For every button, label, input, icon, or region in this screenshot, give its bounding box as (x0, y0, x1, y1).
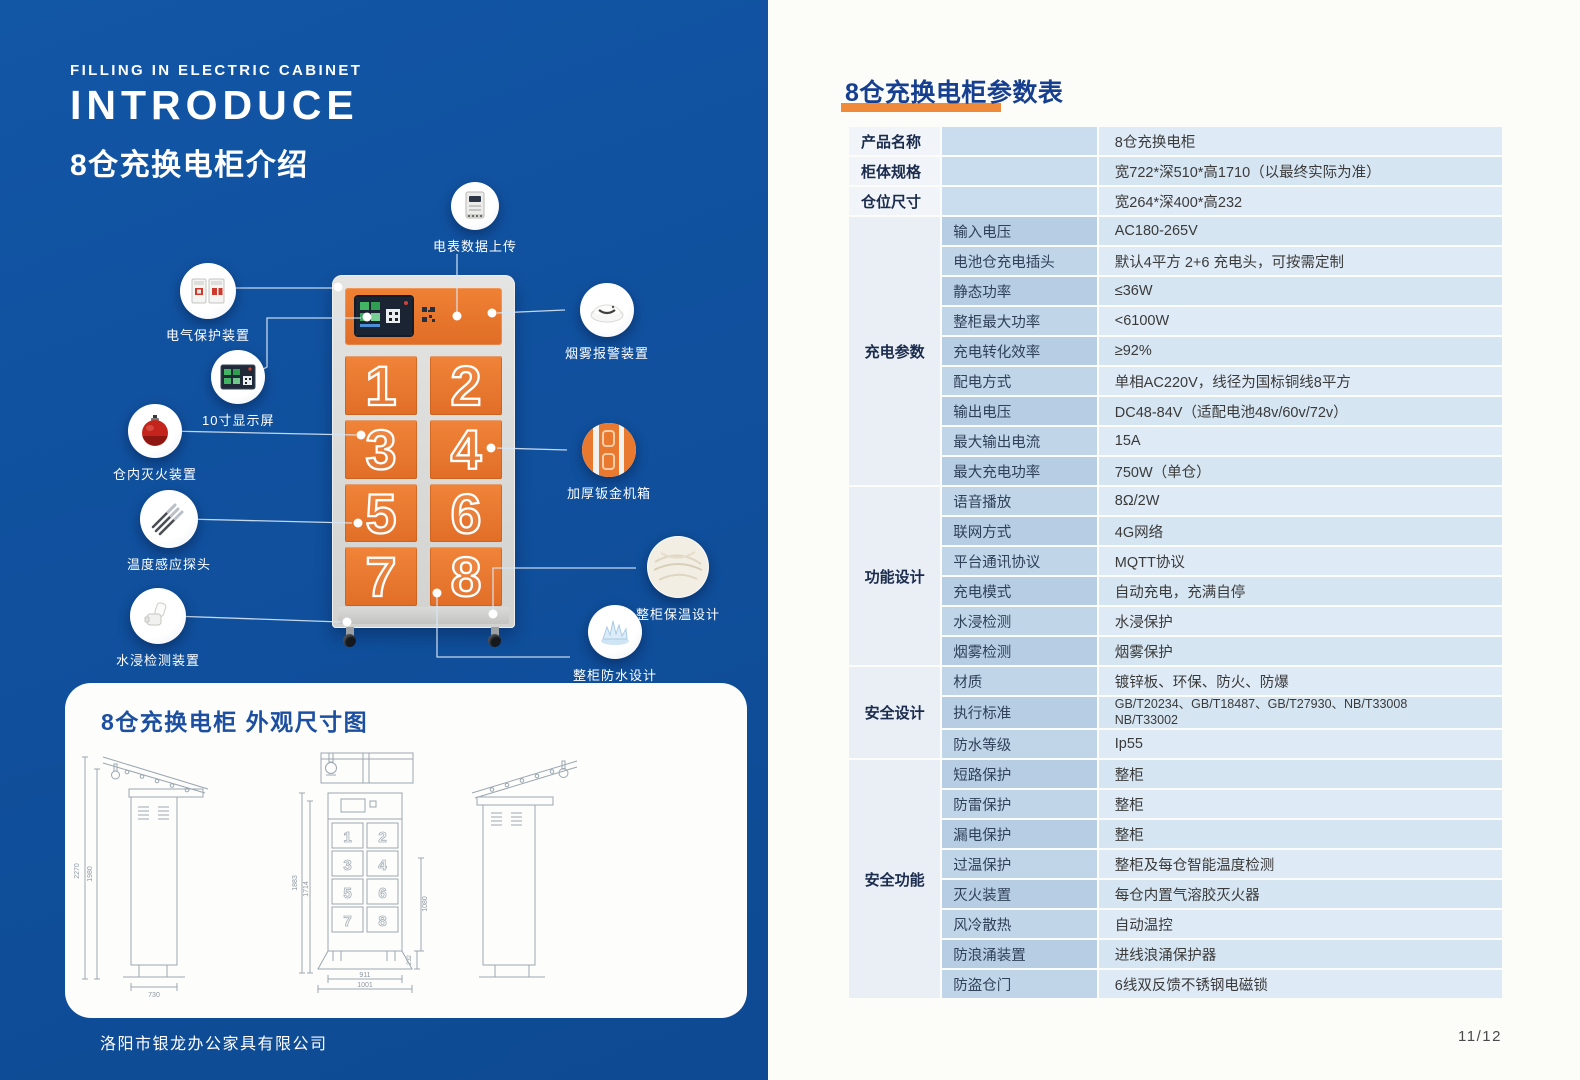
dim-base-width: 1001 (357, 982, 373, 989)
table-row: 最大输出电流15A (849, 427, 1502, 455)
spec-row-value: 烟雾保护 (1099, 637, 1502, 665)
dim-base-height: 232 (407, 954, 413, 965)
spec-row-label: 漏电保护 (942, 820, 1096, 848)
callout-electrical-protection: 电气保护装置 (166, 263, 250, 344)
door-1: 1 (345, 356, 417, 415)
spec-row-label: 静态功率 (942, 277, 1096, 305)
table-row: 联网方式4G网络 (849, 517, 1502, 545)
spec-row-label: 语音播放 (942, 487, 1096, 515)
dim-overall-height: 2270 (74, 863, 81, 879)
temperature-probe-icon (140, 490, 198, 548)
spec-row-label: 短路保护 (942, 760, 1096, 788)
spec-row-value: ≤36W (1099, 277, 1502, 305)
qr-code-icon (422, 307, 435, 322)
table-row: 灭火装置每仓内置气溶胶灭火器 (849, 880, 1502, 908)
dimension-panel-title: 8仓充换电柜 外观尺寸图 (101, 703, 368, 737)
spec-row-value: AC180-265V (1099, 217, 1502, 245)
spec-row-value: 单相AC220V，线径为国标铜线8平方 (1099, 367, 1502, 395)
callout-label: 电气保护装置 (166, 325, 250, 344)
spec-row-label: 风冷散热 (942, 910, 1096, 938)
spec-row-label: 配电方式 (942, 367, 1096, 395)
electric-meter-icon (451, 182, 499, 230)
spec-row-label: 输入电压 (942, 217, 1096, 245)
spec-row-value: 默认4平方 2+6 充电头，可按需定制 (1099, 247, 1502, 275)
spec-table: 产品名称 8仓充换电柜 柜体规格 宽722*深510*高1710（以最终实际为准… (847, 125, 1504, 1000)
door-2: 2 (430, 356, 502, 415)
circuit-breaker-icon (180, 263, 236, 319)
callout-smoke-alarm: 烟雾报警装置 (565, 283, 649, 362)
door-4: 4 (430, 420, 502, 479)
callout-label: 仓内灭火装置 (113, 464, 197, 483)
spec-row-label: 材质 (942, 667, 1096, 695)
display-screen-icon (211, 350, 265, 404)
spec-row-value: MQTT协议 (1099, 547, 1502, 575)
door-number: 6 (450, 484, 481, 543)
spec-row-label: 电池仓充电插头 (942, 247, 1096, 275)
callout-sheet-metal-case: 加厚钣金机箱 (567, 423, 651, 502)
callout-label: 温度感应探头 (127, 554, 211, 573)
door-3: 3 (345, 420, 417, 479)
sheet-metal-icon (582, 423, 636, 477)
caster-wheel-right (487, 627, 503, 649)
dim-body-width: 911 (359, 972, 370, 979)
spec-row-label: 灭火装置 (942, 880, 1096, 908)
table-row: 产品名称 8仓充换电柜 (849, 127, 1502, 155)
table-row: 仓位尺寸 宽264*深400*高232 (849, 187, 1502, 215)
door-5: 5 (345, 484, 417, 543)
spec-row-value: 750W（单仓） (1099, 457, 1502, 485)
smoke-detector-icon (580, 283, 634, 337)
spec-table-title: 8仓充换电柜参数表 (845, 73, 1063, 109)
table-row: 整柜最大功率<6100W (849, 307, 1502, 335)
spec-group-label: 功能设计 (849, 487, 940, 665)
fire-suppression-ball-icon (128, 404, 182, 458)
table-row: 充电模式自动充电，充满自停 (849, 577, 1502, 605)
spec-group-label: 安全功能 (849, 760, 940, 998)
spec-spacer-cell (942, 127, 1096, 155)
door-7: 7 (345, 547, 417, 606)
table-row: 风冷散热自动温控 (849, 910, 1502, 938)
spec-row-value: 6线双反馈不锈钢电磁锁 (1099, 970, 1502, 998)
spec-row-value: 镀锌板、环保、防火、防爆 (1099, 667, 1502, 695)
spec-row-value: 15A (1099, 427, 1502, 455)
callout-water-detection: 水浸检测装置 (116, 588, 200, 669)
spec-group-label: 充电参数 (849, 217, 940, 485)
headline-title-zh: 8仓充换电柜介绍 (70, 140, 362, 184)
spec-row-value: 8Ω/2W (1099, 487, 1502, 515)
cabinet-illustration: 1 2 3 4 5 6 7 8 (332, 275, 515, 628)
callout-label: 电表数据上传 (433, 236, 517, 255)
spec-row-label: 防水等级 (942, 730, 1096, 758)
callout-temperature-probe: 温度感应探头 (127, 490, 211, 573)
table-row: 配电方式单相AC220V，线径为国标铜线8平方 (849, 367, 1502, 395)
table-row: 柜体规格 宽722*深510*高1710（以最终实际为准） (849, 157, 1502, 185)
table-row: 防雷保护整柜 (849, 790, 1502, 818)
dim-door-number: 4 (378, 857, 387, 874)
callout-display-screen: 10寸显示屏 (202, 350, 274, 429)
insulation-ball-icon (647, 536, 709, 598)
dim-depth: 730 (148, 992, 160, 999)
spec-row-value: <6100W (1099, 307, 1502, 335)
callout-label: 整柜防水设计 (573, 665, 657, 684)
callout-label: 水浸检测装置 (116, 650, 200, 669)
caster-wheel-left (342, 627, 358, 649)
spec-row-label: 防雷保护 (942, 790, 1096, 818)
table-row: 安全设计 材质 镀锌板、环保、防火、防爆 (849, 667, 1502, 695)
spec-row-label: 充电模式 (942, 577, 1096, 605)
spec-row-label: 最大输出电流 (942, 427, 1096, 455)
dimension-panel: 8仓充换电柜 外观尺寸图 (65, 683, 747, 1018)
door-number: 8 (450, 547, 481, 606)
table-row: 充电转化效率≥92% (849, 337, 1502, 365)
side-view-right (472, 761, 577, 977)
dim-door-number: 1 (343, 829, 351, 846)
water-sensor-icon (130, 588, 186, 644)
table-row: 烟雾检测烟雾保护 (849, 637, 1502, 665)
spec-row-label: 柜体规格 (849, 157, 940, 185)
page-number: 11/12 (1458, 1028, 1502, 1045)
table-row: 水浸检测水浸保护 (849, 607, 1502, 635)
spec-row-label: 产品名称 (849, 127, 940, 155)
water-splash-icon (588, 605, 642, 659)
spec-row-label: 执行标准 (942, 697, 1096, 728)
door-number: 2 (450, 356, 481, 415)
front-view (299, 753, 424, 993)
dim-door-number: 7 (343, 913, 351, 930)
cabinet-doors: 1 2 3 4 5 6 7 8 (345, 356, 502, 606)
spec-row-value: 水浸保护 (1099, 607, 1502, 635)
table-row: 输出电压DC48-84V（适配电池48v/60v/72v） (849, 397, 1502, 425)
dim-door-number: 5 (343, 885, 351, 902)
dim-door-number: 2 (378, 829, 386, 846)
spec-row-value: 自动充电，充满自停 (1099, 577, 1502, 605)
spec-row-value: 宽264*深400*高232 (1099, 187, 1502, 215)
spec-row-value: 进线浪涌保护器 (1099, 940, 1502, 968)
dim-door-number: 3 (343, 857, 351, 874)
spec-row-value: 整柜及每仓智能温度检测 (1099, 850, 1502, 878)
callout-meter-upload: 电表数据上传 (433, 182, 517, 255)
table-row: 安全功能 短路保护 整柜 (849, 760, 1502, 788)
table-row: 执行标准GB/T20234、GB/T18487、GB/T27930、NB/T33… (849, 697, 1502, 728)
table-row: 电池仓充电插头默认4平方 2+6 充电头，可按需定制 (849, 247, 1502, 275)
headline-title-en: INTRODUCE (70, 82, 362, 129)
table-row: 静态功率≤36W (849, 277, 1502, 305)
spec-spacer-cell (942, 187, 1096, 215)
spec-spacer-cell (942, 157, 1096, 185)
spec-row-label: 水浸检测 (942, 607, 1096, 635)
door-8: 8 (430, 547, 502, 606)
spec-row-value: 每仓内置气溶胶灭火器 (1099, 880, 1502, 908)
headline-eyebrow: FILLING IN ELECTRIC CABINET (70, 62, 362, 79)
door-number: 4 (450, 420, 481, 479)
table-row: 功能设计 语音播放 8Ω/2W (849, 487, 1502, 515)
spec-group-label: 安全设计 (849, 667, 940, 758)
spec-row-label: 仓位尺寸 (849, 187, 940, 215)
table-row: 过温保护整柜及每仓智能温度检测 (849, 850, 1502, 878)
door-6: 6 (430, 484, 502, 543)
spec-row-value: 整柜 (1099, 790, 1502, 818)
door-number: 7 (365, 547, 396, 606)
callout-fire-suppression: 仓内灭火装置 (113, 404, 197, 483)
spec-row-value: 自动温控 (1099, 910, 1502, 938)
dim-front-height-b: 1714 (303, 881, 310, 897)
spec-row-label: 过温保护 (942, 850, 1096, 878)
spec-row-value: ≥92% (1099, 337, 1502, 365)
spec-row-value: 8仓充换电柜 (1099, 127, 1502, 155)
spec-row-value: 整柜 (1099, 820, 1502, 848)
spec-row-label: 防浪涌装置 (942, 940, 1096, 968)
callout-waterproof-design: 整柜防水设计 (573, 605, 657, 684)
company-name: 洛阳市银龙办公家具有限公司 (100, 1030, 328, 1054)
table-row: 漏电保护整柜 (849, 820, 1502, 848)
side-view-left (82, 757, 208, 991)
spec-row-value: GB/T20234、GB/T18487、GB/T27930、NB/T33008 … (1099, 697, 1502, 728)
dimension-drawings: 1 2 3 4 5 6 7 8 2270 1980 730 1883 1714 … (65, 741, 747, 1011)
spec-row-value: Ip55 (1099, 730, 1502, 758)
brochure-page: FILLING IN ELECTRIC CABINET INTRODUCE 8仓… (0, 0, 1580, 1080)
spec-panel: 8仓充换电柜参数表 产品名称 8仓充换电柜 柜体规格 宽722*深510*高17… (768, 0, 1580, 1080)
door-number: 1 (365, 356, 396, 415)
spec-row-label: 充电转化效率 (942, 337, 1096, 365)
touchscreen-ui-icon (356, 297, 412, 335)
door-number: 5 (365, 484, 396, 543)
table-row: 防盗仓门6线双反馈不锈钢电磁锁 (849, 970, 1502, 998)
spec-row-label: 防盗仓门 (942, 970, 1096, 998)
spec-row-label: 最大充电功率 (942, 457, 1096, 485)
dim-door-number: 8 (378, 913, 386, 930)
spec-row-value: 4G网络 (1099, 517, 1502, 545)
dim-door-section-height: 1080 (422, 896, 429, 912)
dim-door-number: 6 (378, 885, 386, 902)
door-number: 3 (365, 420, 396, 479)
callout-label: 加厚钣金机箱 (567, 483, 651, 502)
cabinet-base (338, 607, 509, 624)
spec-row-label: 烟雾检测 (942, 637, 1096, 665)
headline: FILLING IN ELECTRIC CABINET INTRODUCE 8仓… (70, 62, 362, 184)
table-row: 平台通讯协议MQTT协议 (849, 547, 1502, 575)
table-row: 防水等级Ip55 (849, 730, 1502, 758)
table-row: 充电参数 输入电压 AC180-265V (849, 217, 1502, 245)
spec-row-value: DC48-84V（适配电池48v/60v/72v） (1099, 397, 1502, 425)
intro-panel: FILLING IN ELECTRIC CABINET INTRODUCE 8仓… (0, 0, 768, 1080)
spec-row-label: 联网方式 (942, 517, 1096, 545)
dim-front-height-a: 1883 (292, 875, 299, 891)
spec-row-label: 平台通讯协议 (942, 547, 1096, 575)
cabinet-control-panel (345, 288, 502, 345)
spec-row-value: 宽722*深510*高1710（以最终实际为准） (1099, 157, 1502, 185)
spec-row-label: 输出电压 (942, 397, 1096, 425)
cabinet-touchscreen (356, 297, 412, 335)
callout-label: 10寸显示屏 (202, 410, 274, 429)
table-row: 防浪涌装置进线浪涌保护器 (849, 940, 1502, 968)
callout-label: 烟雾报警装置 (565, 343, 649, 362)
spec-row-label: 整柜最大功率 (942, 307, 1096, 335)
table-row: 最大充电功率750W（单仓） (849, 457, 1502, 485)
dim-body-height: 1980 (87, 866, 94, 882)
spec-row-value: 整柜 (1099, 760, 1502, 788)
